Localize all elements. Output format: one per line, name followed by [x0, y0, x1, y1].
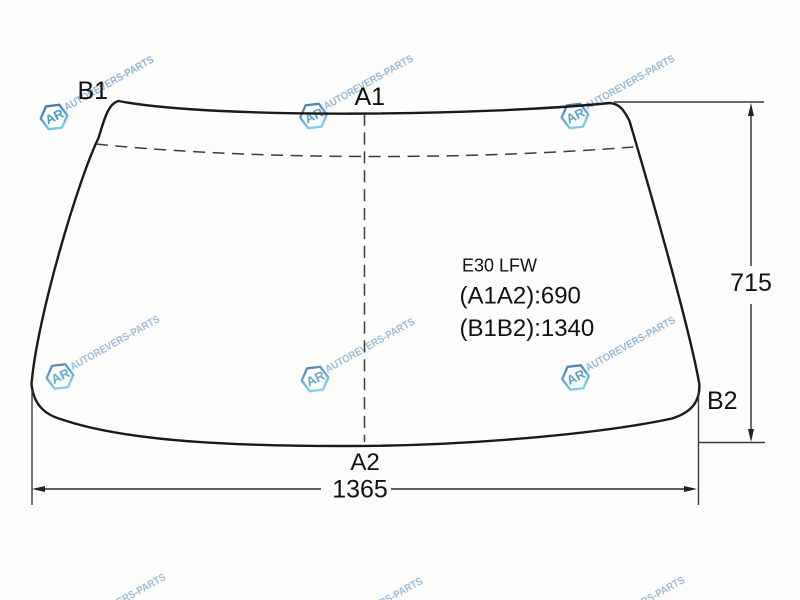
svg-text:E30 LFW: E30 LFW: [462, 256, 537, 276]
svg-text:(A1A2):690: (A1A2):690: [460, 283, 581, 310]
svg-text:(B1B2):1340: (B1B2):1340: [460, 315, 595, 342]
svg-text:715: 715: [730, 269, 772, 297]
svg-text:B1: B1: [78, 77, 109, 105]
svg-text:1365: 1365: [332, 476, 388, 504]
svg-text:A2: A2: [350, 449, 379, 476]
svg-text:B2: B2: [707, 387, 738, 415]
svg-text:A1: A1: [355, 83, 386, 111]
